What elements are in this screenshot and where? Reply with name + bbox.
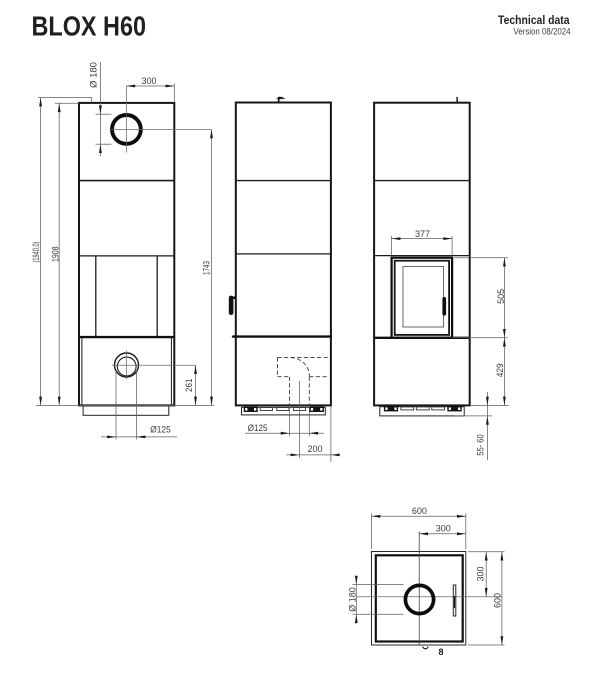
svg-text:600: 600 (492, 593, 502, 608)
svg-text:Version 08/2024: Version 08/2024 (514, 27, 571, 37)
svg-text:(1940.0): (1940.0) (31, 242, 41, 263)
svg-text:505: 505 (496, 289, 506, 304)
svg-text:377: 377 (415, 229, 430, 239)
svg-text:Ø125: Ø125 (248, 423, 268, 433)
svg-text:BLOX H60: BLOX H60 (32, 10, 147, 41)
svg-text:Technical data: Technical data (498, 15, 570, 27)
svg-text:600: 600 (412, 506, 427, 516)
svg-text:300: 300 (141, 76, 156, 86)
svg-text:300: 300 (436, 523, 451, 533)
svg-text:Ø 180: Ø 180 (88, 62, 98, 88)
svg-text:55- 60: 55- 60 (475, 434, 485, 456)
svg-text:8: 8 (439, 647, 444, 657)
svg-text:300: 300 (476, 566, 486, 581)
svg-text:200: 200 (307, 444, 322, 454)
svg-text:1908: 1908 (50, 246, 60, 262)
svg-text:Ø 180: Ø 180 (347, 587, 357, 612)
svg-text:261: 261 (184, 379, 194, 393)
svg-text:429: 429 (495, 363, 505, 377)
svg-text:1743: 1743 (202, 261, 212, 275)
svg-text:Ø125: Ø125 (150, 424, 171, 434)
